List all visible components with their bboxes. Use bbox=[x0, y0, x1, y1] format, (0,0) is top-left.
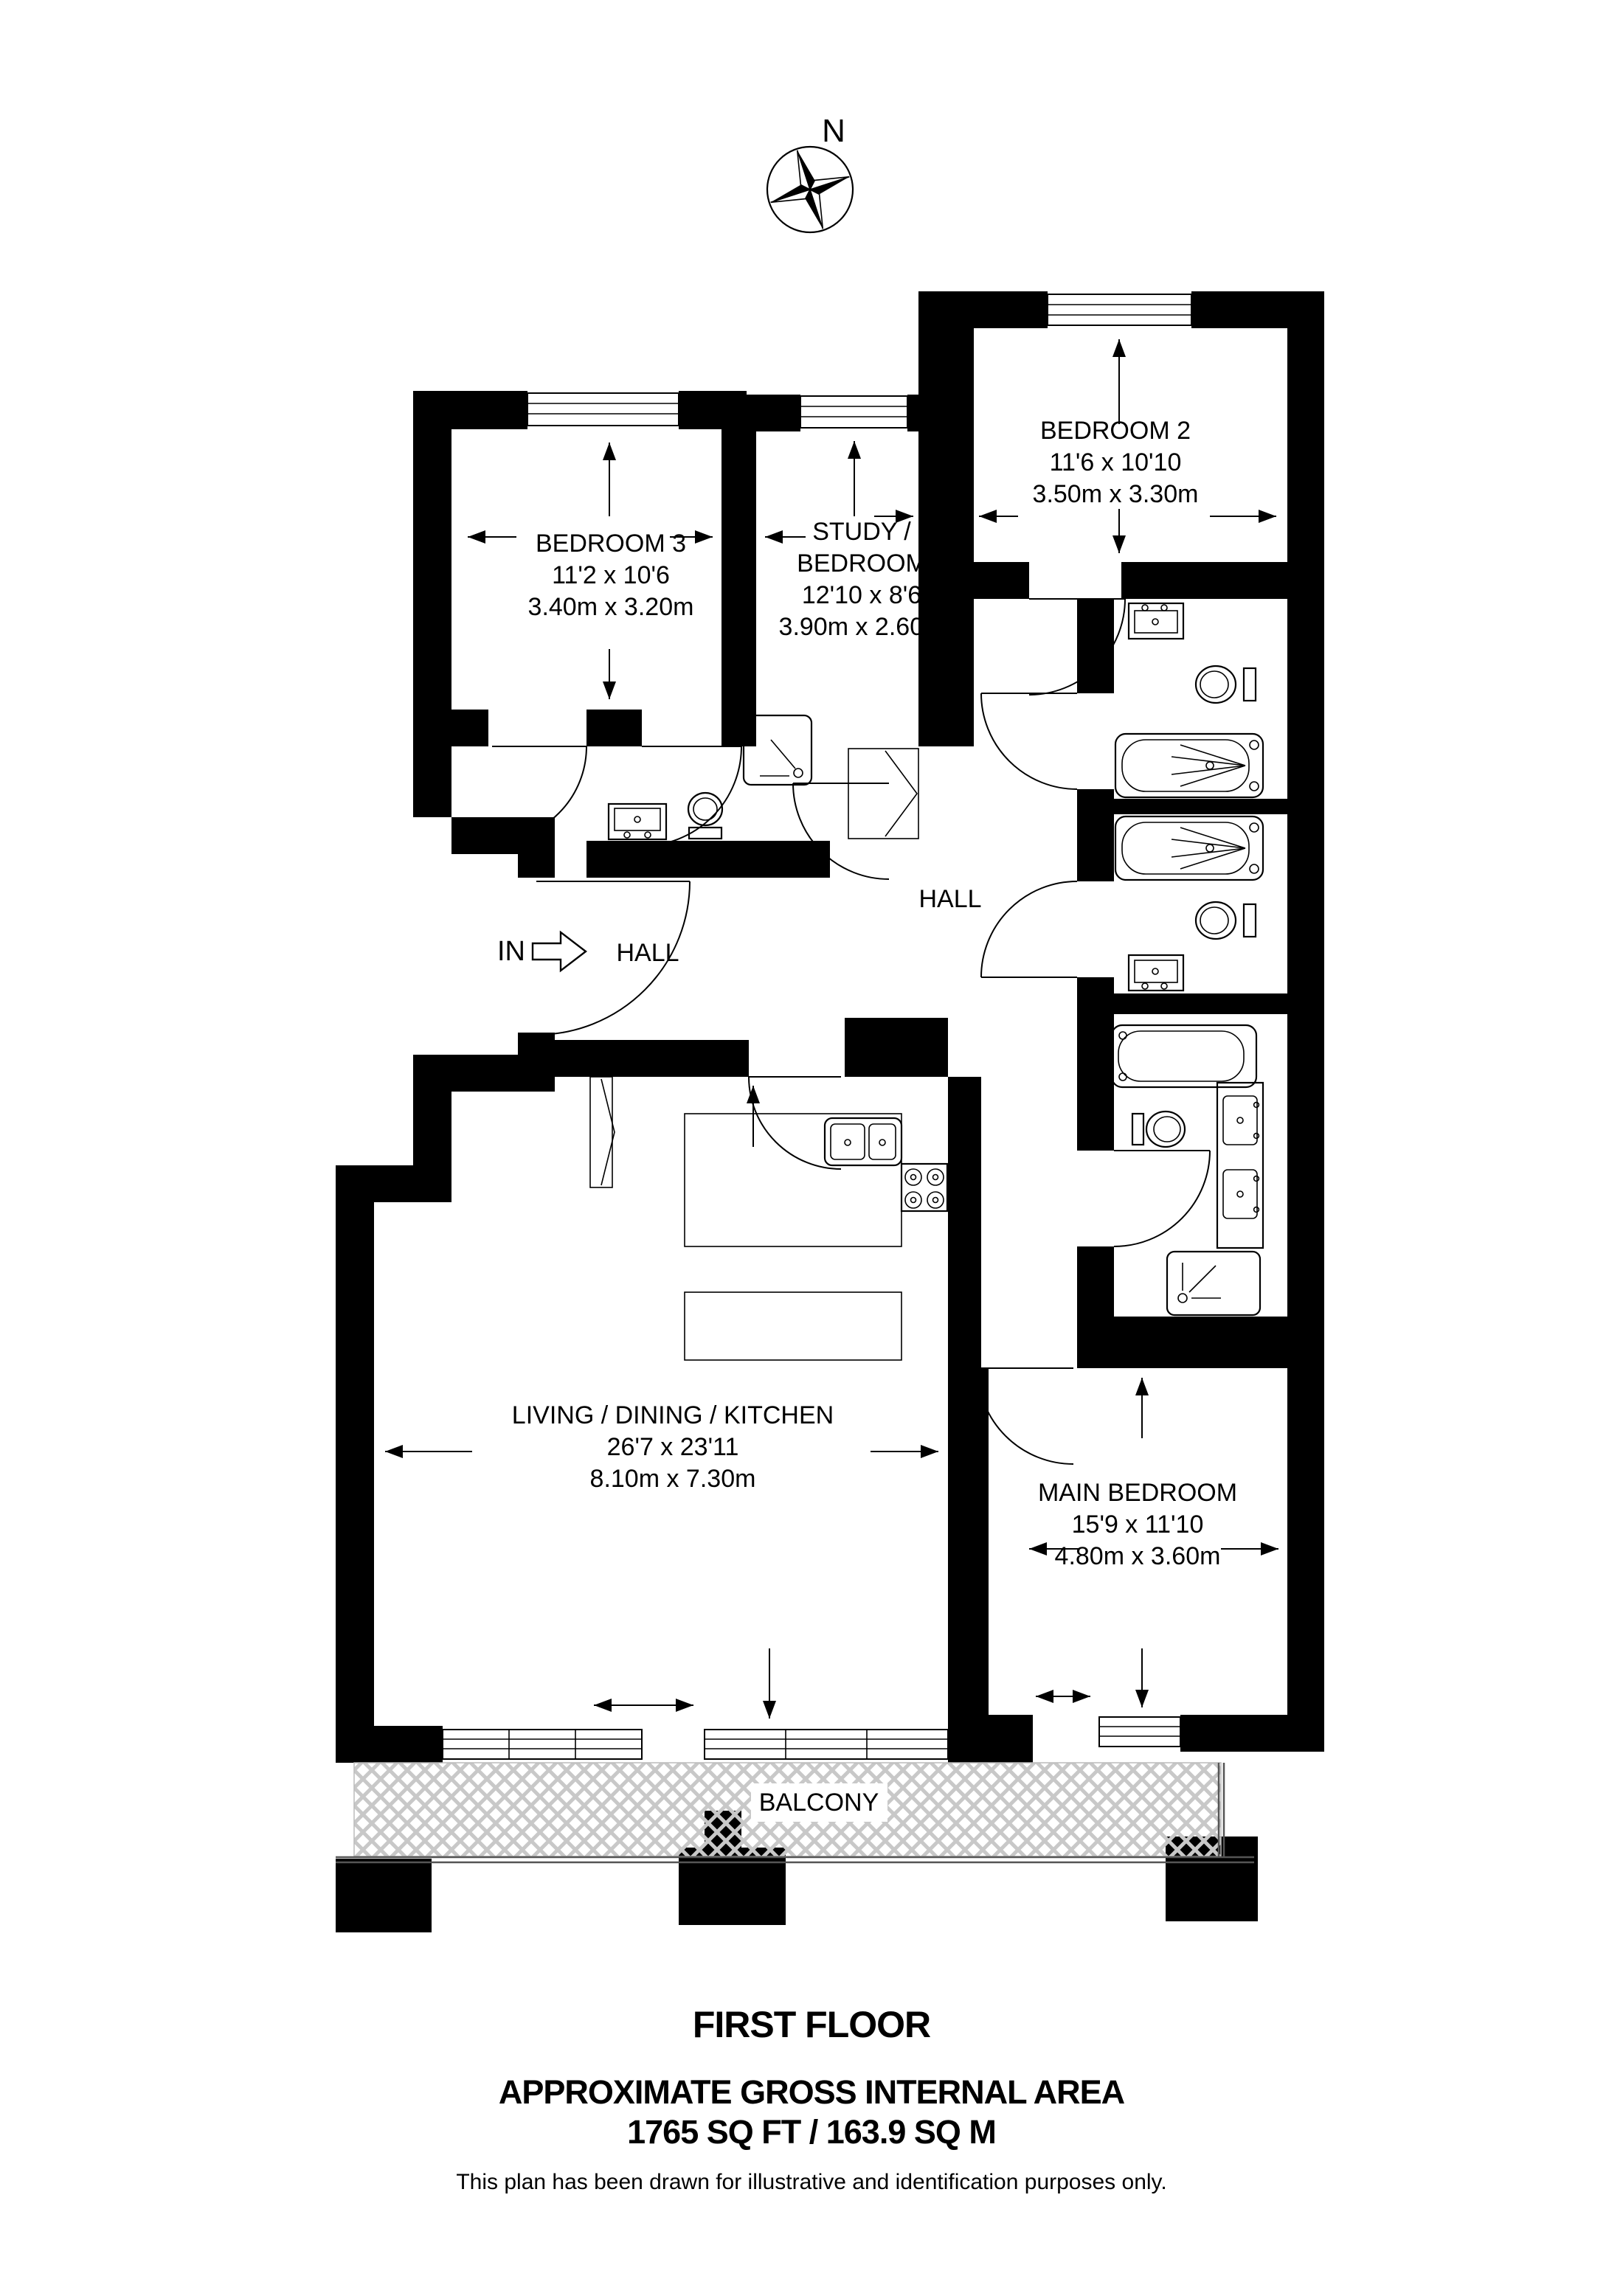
bathtub-icon bbox=[1112, 1025, 1256, 1087]
svg-text:MAIN BEDROOM: MAIN BEDROOM bbox=[1038, 1479, 1237, 1507]
hob-icon bbox=[902, 1164, 947, 1211]
window-living-right bbox=[705, 1730, 948, 1759]
kitchen-sink-icon bbox=[825, 1118, 902, 1165]
area-value: 1765 SQ FT / 163.9 SQ M bbox=[627, 2113, 996, 2151]
entrance-label: IN bbox=[497, 936, 525, 967]
svg-text:12'10 x 8'6: 12'10 x 8'6 bbox=[802, 581, 921, 609]
svg-text:4.80m x 3.60m: 4.80m x 3.60m bbox=[1055, 1542, 1221, 1570]
svg-text:BEDROOM 2: BEDROOM 2 bbox=[1040, 417, 1191, 445]
window-bedroom2 bbox=[1048, 294, 1191, 325]
window-bedroom3 bbox=[527, 393, 679, 426]
floorplan-page: N bbox=[0, 0, 1623, 2296]
bathroom1-door bbox=[981, 693, 1077, 789]
label-main-bedroom: MAIN BEDROOM 15'9 x 11'10 4.80m x 3.60m bbox=[1038, 1479, 1237, 1570]
label-living: LIVING / DINING / KITCHEN 26'7 x 23'11 8… bbox=[512, 1401, 834, 1493]
bathtub-icon bbox=[1115, 816, 1263, 880]
balcony-label: BALCONY bbox=[759, 1789, 879, 1817]
svg-text:11'6 x 10'10: 11'6 x 10'10 bbox=[1050, 448, 1182, 476]
compass-north-label: N bbox=[822, 113, 845, 149]
sink-icon bbox=[1129, 603, 1183, 639]
window-living-left bbox=[443, 1730, 642, 1759]
entrance-marker: IN bbox=[497, 932, 586, 971]
svg-text:LIVING / DINING / KITCHEN: LIVING / DINING / KITCHEN bbox=[512, 1401, 834, 1429]
svg-text:15'9 x 11'10: 15'9 x 11'10 bbox=[1072, 1511, 1204, 1539]
floorplan-drawing: N bbox=[0, 0, 1623, 2296]
svg-text:BEDROOM: BEDROOM bbox=[797, 549, 927, 578]
label-bedroom3: BEDROOM 3 11'2 x 10'6 3.40m x 3.20m bbox=[528, 530, 694, 621]
svg-text:11'2 x 10'6: 11'2 x 10'6 bbox=[552, 561, 670, 589]
toilet-icon bbox=[1196, 902, 1256, 939]
entrance-arrow-icon bbox=[533, 932, 586, 971]
toilet-icon bbox=[1132, 1111, 1185, 1147]
balcony-area: BALCONY bbox=[336, 1763, 1254, 1862]
shower-tray-icon bbox=[1167, 1252, 1260, 1315]
area-heading: APPROXIMATE GROSS INTERNAL AREA bbox=[499, 2073, 1125, 2111]
double-vanity-icon bbox=[1217, 1083, 1263, 1248]
svg-text:STUDY /: STUDY / bbox=[812, 518, 911, 546]
compass-rose-icon: N bbox=[758, 113, 862, 242]
closet-bifold-hall bbox=[848, 749, 918, 839]
bathtub-icon bbox=[1115, 734, 1263, 797]
toilet-icon bbox=[1196, 666, 1256, 703]
svg-text:BEDROOM 3: BEDROOM 3 bbox=[536, 530, 686, 558]
window-main-bedroom bbox=[1099, 1717, 1180, 1747]
label-bedroom2: BEDROOM 2 11'6 x 10'10 3.50m x 3.30m bbox=[1033, 417, 1199, 508]
hall-to-living-door bbox=[749, 1077, 841, 1169]
sink-icon bbox=[609, 804, 666, 839]
main-bedroom-door bbox=[977, 1368, 1073, 1464]
svg-text:26'7 x 23'11: 26'7 x 23'11 bbox=[607, 1433, 739, 1461]
sink-icon bbox=[1129, 955, 1183, 991]
bathroom2-door bbox=[981, 881, 1077, 977]
svg-text:3.90m x 2.60m: 3.90m x 2.60m bbox=[779, 613, 945, 641]
title-block: FIRST FLOOR APPROXIMATE GROSS INTERNAL A… bbox=[456, 2004, 1166, 2194]
closet-bifold-living bbox=[590, 1077, 615, 1187]
svg-text:3.50m x 3.30m: 3.50m x 3.30m bbox=[1033, 480, 1199, 508]
disclaimer-text: This plan has been drawn for illustrativ… bbox=[456, 2170, 1166, 2194]
window-study bbox=[800, 396, 907, 428]
svg-text:8.10m x 7.30m: 8.10m x 7.30m bbox=[590, 1465, 756, 1493]
svg-text:3.40m x 3.20m: 3.40m x 3.20m bbox=[528, 593, 694, 621]
ensuite-door bbox=[1114, 1151, 1210, 1246]
floor-title: FIRST FLOOR bbox=[693, 2004, 931, 2045]
label-hall-right: HALL bbox=[918, 885, 981, 913]
label-hall-left: HALL bbox=[616, 939, 679, 967]
